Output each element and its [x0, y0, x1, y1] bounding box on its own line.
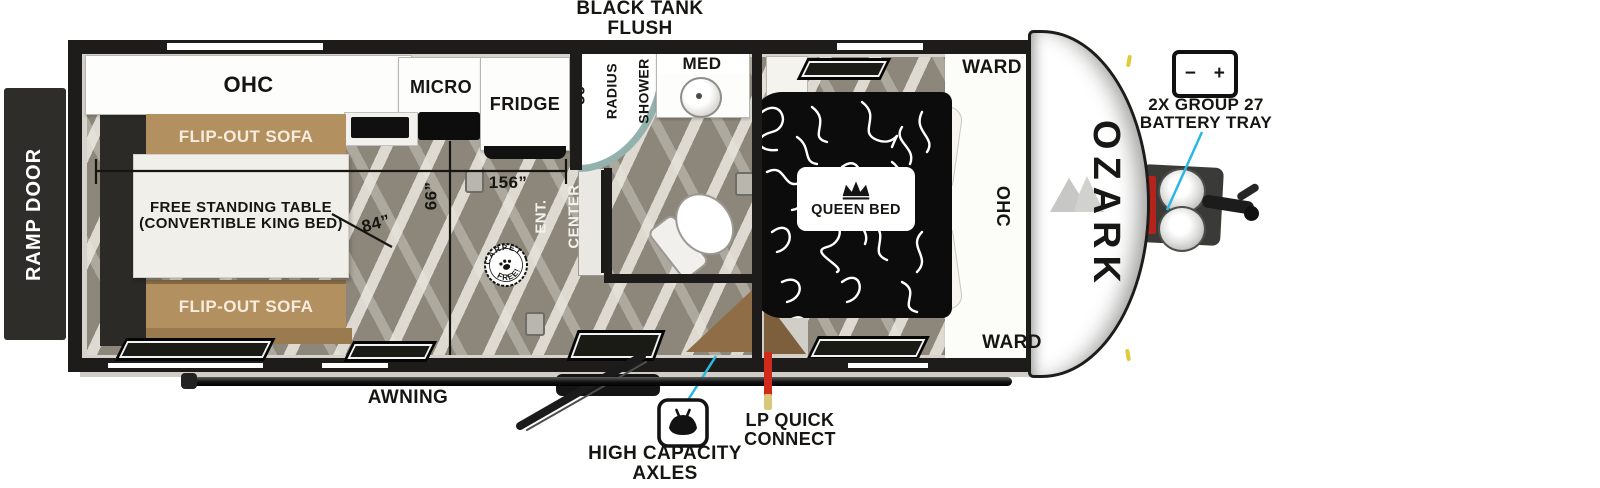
ward-top: WARD: [948, 56, 1036, 80]
lp-line2: CONNECT: [744, 430, 836, 449]
ramp-door-panel: RAMP DOOR: [4, 88, 66, 340]
micro-label: MICRO: [410, 78, 472, 97]
axles-line2: AXLES: [632, 464, 697, 484]
dim-156-label: 156”: [480, 173, 536, 193]
awning-label-wrap: AWNING: [348, 386, 468, 410]
bath-lower-wall: [604, 168, 612, 280]
lp-connector-tube: [764, 352, 772, 398]
black-tank-line2: FLUSH: [607, 19, 672, 39]
lp-line1: LP QUICK: [746, 411, 835, 430]
battery-minus: −: [1185, 64, 1197, 84]
awning-bar-endcap: [181, 373, 197, 389]
dim-66-label: 66”: [414, 168, 448, 224]
shower-word2: SHOWER: [636, 58, 652, 123]
ward-bottom-label: WARD: [982, 333, 1042, 353]
bottom-wall-window1: [108, 363, 263, 368]
crown-icon: [840, 179, 872, 200]
bottom-wall-window3: [848, 363, 928, 368]
ent-line1: ENT.: [532, 199, 549, 233]
axles-line1: HIGH CAPACITY: [588, 444, 742, 464]
tongue-jack-knob: [1244, 206, 1259, 221]
queen-bed-label: QUEEN BED: [797, 167, 915, 231]
battery-tray-label: 2X GROUP 27 BATTERY TRAY: [1140, 93, 1272, 135]
rear-wall: [68, 40, 82, 372]
bedroom-roof-vent: [797, 58, 892, 80]
ent-line2: CENTER: [565, 184, 582, 248]
cooktop: [351, 117, 409, 138]
flip-out-sofa-bottom-label: FLIP-OUT SOFA: [179, 298, 314, 316]
black-tank-flush-label: BLACK TANK FLUSH: [540, 0, 740, 38]
ward-top-label: WARD: [962, 58, 1022, 78]
bottom-wall-window2: [322, 363, 388, 368]
kitchen-bath-wall: [570, 52, 582, 170]
bath-sink-drain: [696, 93, 702, 99]
kitchen-ohc-cabinet: OHC: [85, 55, 412, 115]
awning-label: AWNING: [368, 388, 449, 408]
table-label-line1: FREE STANDING TABLE: [150, 200, 332, 216]
bath-bedroom-wall: [752, 52, 762, 358]
black-tank-line1: BLACK TANK: [576, 0, 703, 19]
tongue-jack-handle: [1236, 182, 1261, 202]
living-window-right: [343, 341, 437, 362]
med-label: MED: [683, 55, 722, 73]
fridge-base: [484, 146, 566, 159]
battery-line1: 2X GROUP 27: [1148, 96, 1264, 114]
top-wall-window-bedroom: [837, 43, 923, 50]
med-label-band: MED: [658, 54, 746, 74]
entry-door: [566, 330, 665, 361]
micro-cabinet: MICRO: [398, 57, 484, 117]
fridge-label: FRIDGE: [490, 95, 560, 114]
battery-line2: BATTERY TRAY: [1140, 114, 1272, 132]
living-window-left: [114, 338, 275, 361]
brand-text: OZARK: [1085, 120, 1125, 290]
ward-bottom: WARD: [968, 332, 1056, 354]
shower-label: 36” RADIUS SHOWER: [576, 54, 648, 154]
ramp-door-label: RAMP DOOR: [25, 147, 46, 280]
battery-plus: +: [1214, 64, 1226, 84]
lp-label: LP QUICK CONNECT: [728, 410, 852, 450]
flip-out-sofa-bottom: FLIP-OUT SOFA: [146, 280, 346, 330]
table-label-line2: (CONVERTIBLE KING BED): [139, 216, 343, 232]
top-wall-window: [167, 43, 323, 50]
battery-icon: − +: [1172, 50, 1238, 98]
floor-vent: [525, 312, 545, 336]
awning-bar: [186, 377, 1012, 386]
bath-bottom-wall: [604, 274, 762, 283]
marker-light-bottom: [1125, 349, 1131, 362]
ent-center-label: ENT. CENTER: [538, 184, 578, 276]
shower-word1: RADIUS: [604, 63, 620, 119]
bedroom-ohc: OHC: [984, 176, 1022, 236]
floorplan-canvas: BLACK TANK FLUSH RAMP DOOR OHC MICRO FRI…: [0, 0, 1600, 488]
queen-bed-text: QUEEN BED: [811, 203, 901, 218]
microwave: [418, 112, 480, 140]
bedroom-window: [806, 336, 930, 360]
flip-out-sofa-top-label: FLIP-OUT SOFA: [179, 128, 314, 146]
kitchen-ohc-label: OHC: [223, 73, 273, 96]
free-standing-table: FREE STANDING TABLE (CONVERTIBLE KING BE…: [133, 154, 349, 278]
bedroom-ohc-label: OHC: [994, 185, 1013, 226]
lp-connector-tip: [764, 394, 772, 410]
